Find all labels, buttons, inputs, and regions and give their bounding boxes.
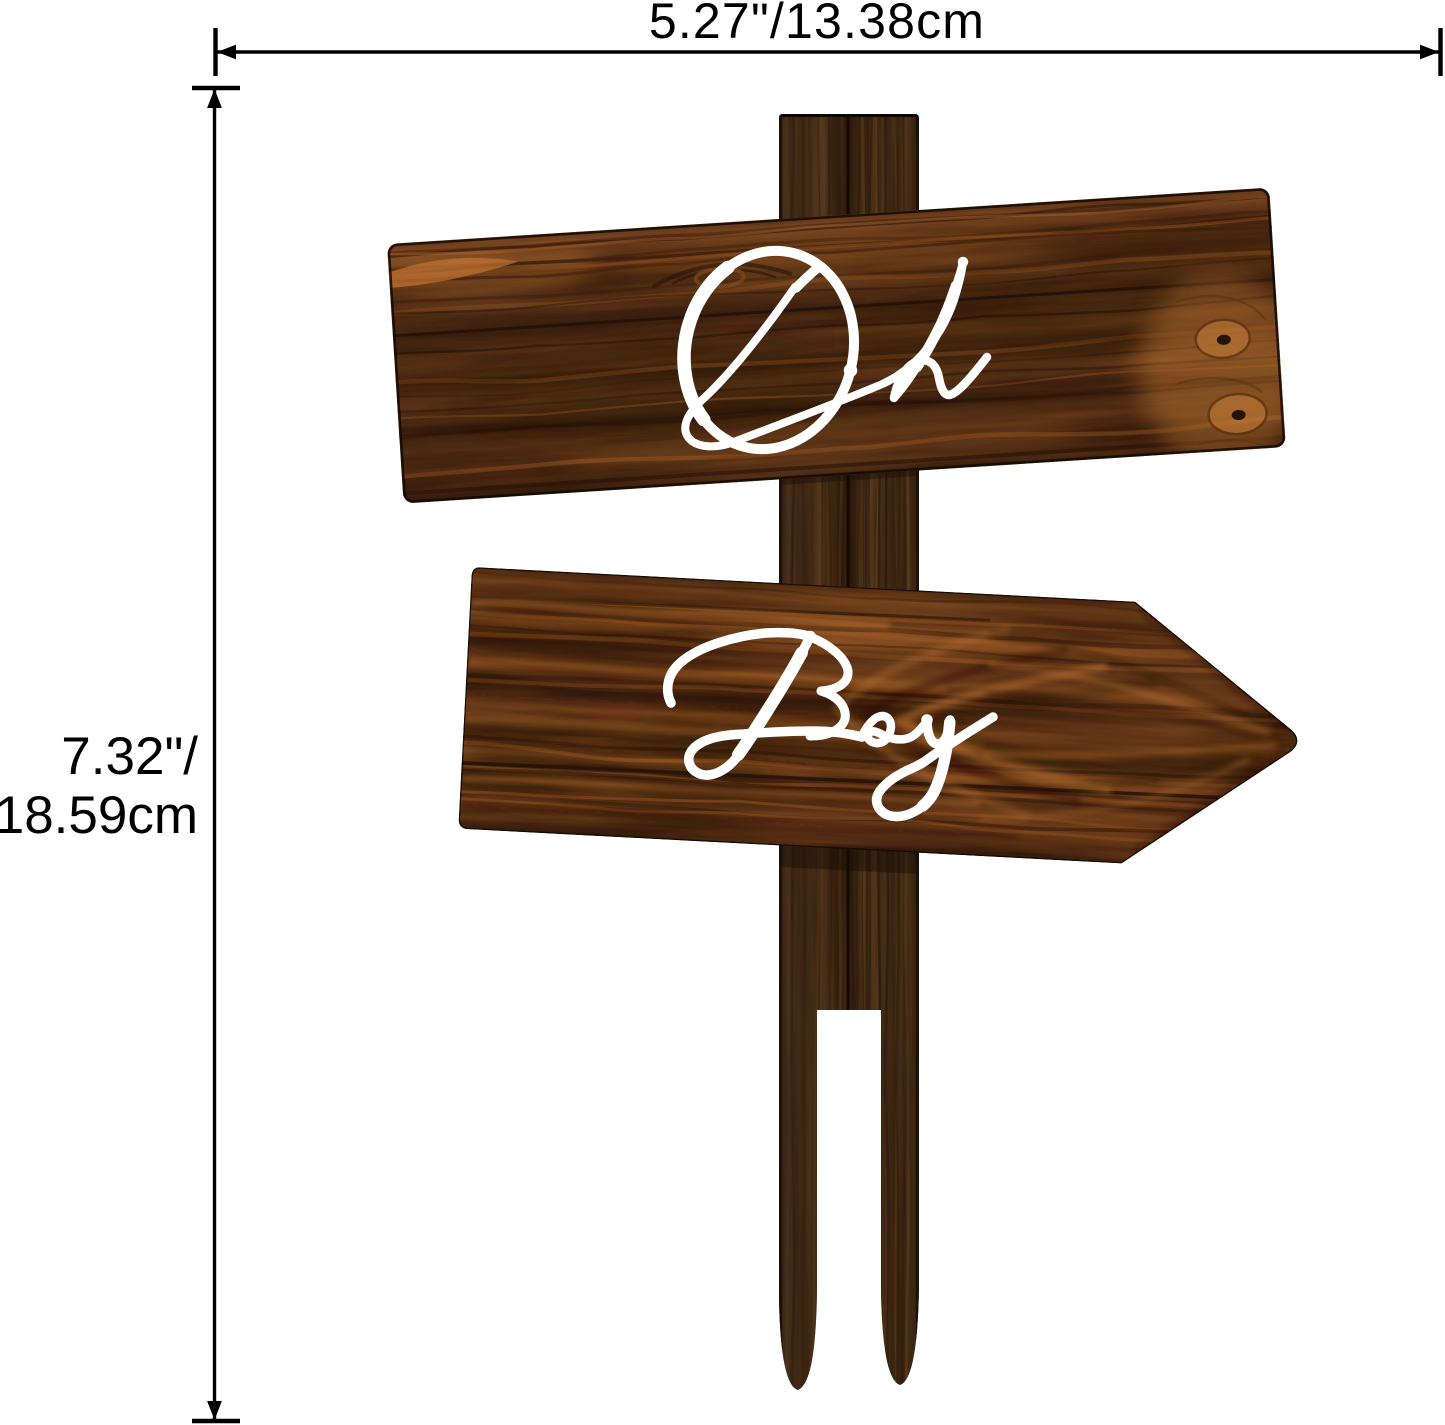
svg-text:18.59cm: 18.59cm [0, 786, 198, 845]
svg-text:7.32"/: 7.32"/ [61, 727, 198, 786]
svg-text:5.27"/13.38cm: 5.27"/13.38cm [649, 0, 985, 49]
